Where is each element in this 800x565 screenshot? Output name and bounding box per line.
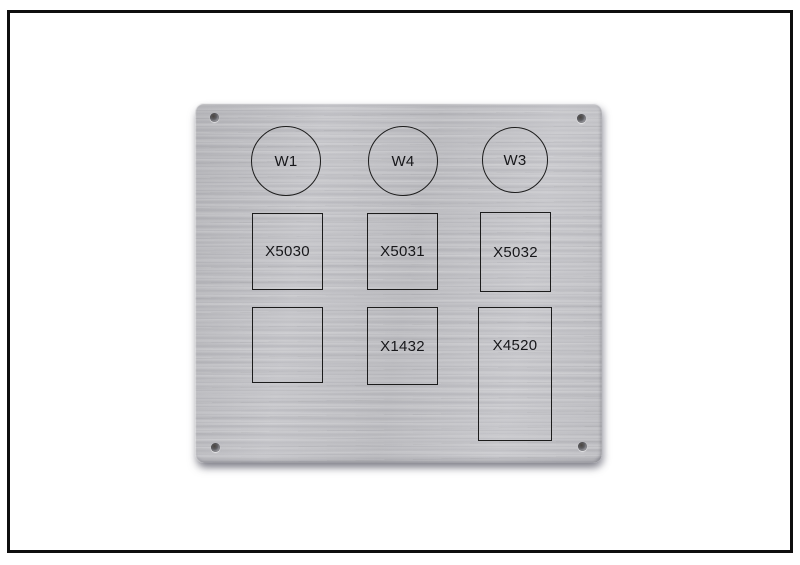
square-cutout-x1432: X1432 (367, 307, 438, 385)
screw-hole-top-left (210, 113, 219, 122)
cutout-label: X5030 (265, 243, 310, 260)
square-cutout-x5032: X5032 (480, 212, 551, 292)
rect-cutout-x4520: X4520 (478, 307, 552, 441)
square-cutout-x5030: X5030 (252, 213, 323, 290)
cutout-label: W4 (391, 153, 414, 170)
product-photo: W1 W4 W3 X5030 X5031 X5032 X1432 X4520 (0, 0, 800, 565)
circle-cutout-w3: W3 (482, 127, 548, 193)
screw-hole-bottom-right (578, 442, 587, 451)
cutout-label: W3 (503, 152, 526, 169)
square-cutout-blank (252, 307, 323, 383)
circle-cutout-w1: W1 (251, 126, 321, 196)
screw-hole-top-right (577, 114, 586, 123)
cutout-label: X5032 (493, 244, 538, 261)
cutout-label: X4520 (493, 337, 538, 354)
cutout-label: X1432 (380, 338, 425, 355)
square-cutout-x5031: X5031 (367, 213, 438, 290)
aluminum-label-plate: W1 W4 W3 X5030 X5031 X5032 X1432 X4520 (195, 103, 602, 463)
cutout-label: W1 (274, 153, 297, 170)
cutout-label: X5031 (380, 243, 425, 260)
circle-cutout-w4: W4 (368, 126, 438, 196)
screw-hole-bottom-left (211, 443, 220, 452)
